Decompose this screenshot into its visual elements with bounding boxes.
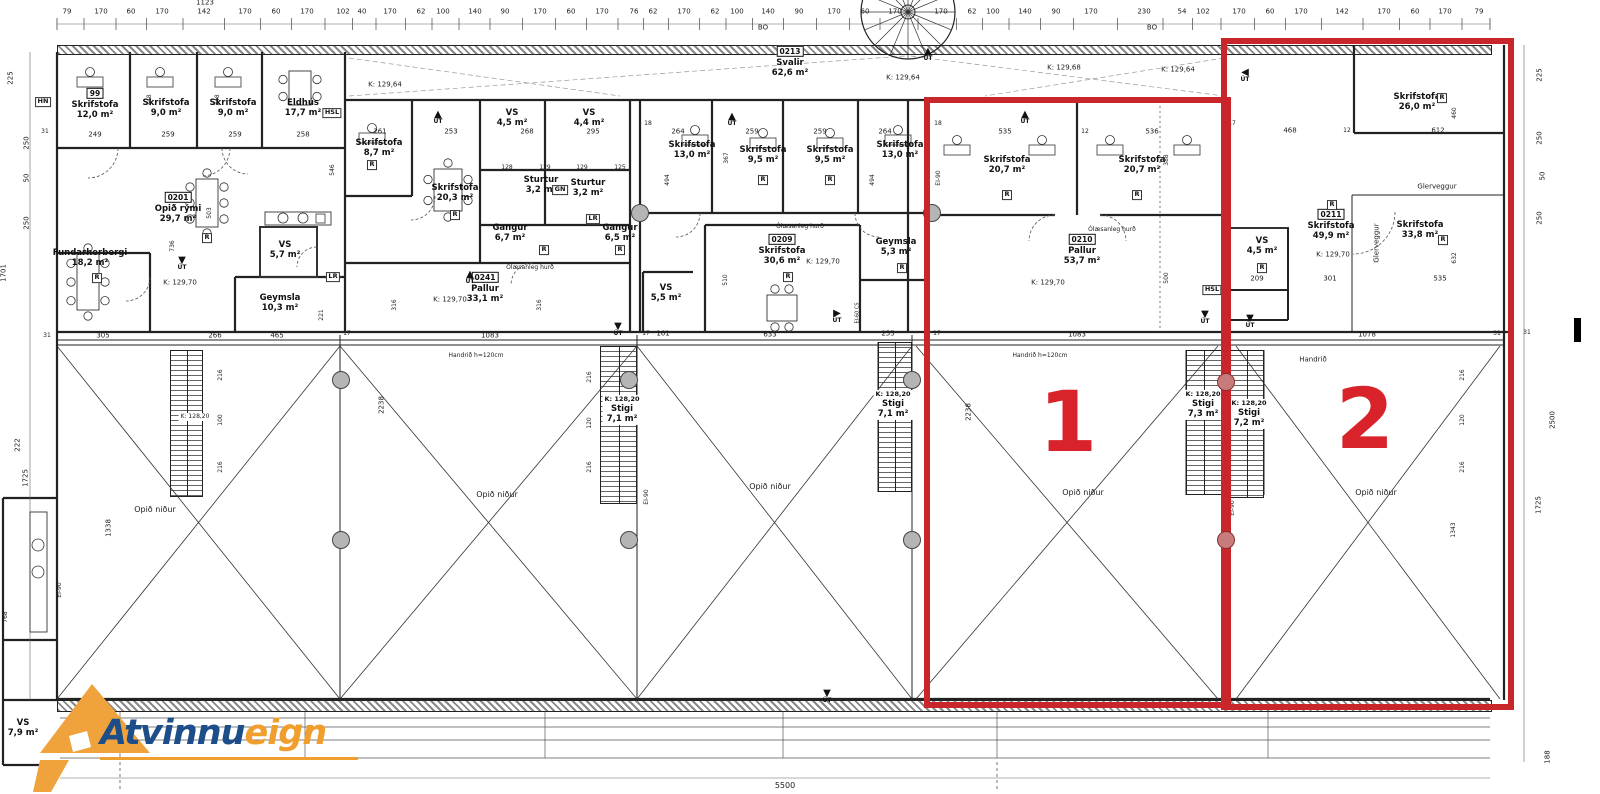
dim-label: 170 xyxy=(238,9,251,16)
text-label: Ólæsanleg hurð xyxy=(506,265,554,271)
dim-label: 60 xyxy=(1266,9,1275,16)
dim-label: 18 xyxy=(644,121,652,127)
room-label: Skrifstofa9,5 m² xyxy=(807,145,854,165)
dim-label: 31 xyxy=(1523,330,1531,336)
room-area: 5,3 m² xyxy=(876,247,917,257)
logo-word-orange: eign xyxy=(244,713,326,753)
unit-2-number: 2 xyxy=(1336,377,1394,461)
dim-label: 170 xyxy=(1294,9,1307,16)
dim-label: 50 xyxy=(1540,172,1547,181)
room-label: 99Skrifstofa12,0 m² xyxy=(72,88,119,120)
dim-label: 40 xyxy=(358,9,367,16)
room-area: 4,4 m² xyxy=(574,118,605,128)
dim-label: 1701 xyxy=(1,264,8,282)
dim-label: 79 xyxy=(63,9,72,16)
room-id: 0213 xyxy=(777,46,804,57)
room-name: Skrifstofa xyxy=(432,183,479,193)
room-area: 13,0 m² xyxy=(669,150,716,160)
exit-arrow-icon: ▲ÚT xyxy=(466,271,475,285)
dim-label: 170 xyxy=(1438,9,1451,16)
dim-label: 102 xyxy=(336,9,349,16)
dim-label: 170 xyxy=(1084,9,1097,16)
text-label: BO xyxy=(1147,25,1157,32)
dim-label: 1725 xyxy=(1536,496,1543,514)
dim-label: 305 xyxy=(96,333,109,340)
dim-label: 768 xyxy=(3,611,9,622)
exit-arrow-icon: ▲ÚT xyxy=(434,111,443,125)
room-area: 17,7 m² xyxy=(285,108,322,118)
wall-tag: R xyxy=(615,245,625,255)
dim-label: 258 xyxy=(296,132,309,139)
dim-label: 120 xyxy=(587,417,593,428)
dim-label: 250 xyxy=(1537,131,1544,144)
dim-label: 250 xyxy=(1537,211,1544,224)
dim-label: 1338 xyxy=(106,519,113,537)
text-label: K: 129,68 xyxy=(1047,65,1081,72)
dim-label: 170 xyxy=(300,9,313,16)
text-label: K: 129,64 xyxy=(886,75,920,82)
exit-arrow-icon: ▲ÚT xyxy=(728,113,737,127)
room-label: Skrifstofa13,0 m² xyxy=(877,140,924,160)
structural-column xyxy=(1217,531,1235,549)
dim-label: 367 xyxy=(724,152,730,163)
dim-label: 255 xyxy=(881,331,894,338)
room-name: Skrifstofa xyxy=(143,98,190,108)
room-id: 99 xyxy=(87,88,103,99)
text-label: K: 129,70 xyxy=(806,259,840,266)
dim-label: 90 xyxy=(795,9,804,16)
dim-label: 90 xyxy=(1052,9,1061,16)
structural-column xyxy=(332,371,350,389)
dim-label: 170 xyxy=(934,9,947,16)
logo-wordmark: Atvinnueign xyxy=(100,716,326,751)
wall-tag: GN xyxy=(552,185,568,195)
logo-word-blue: Atvinnu xyxy=(100,713,244,753)
room-area: 7,9 m² xyxy=(8,728,39,738)
wall-tag: R xyxy=(783,272,793,282)
dim-label: 31 xyxy=(43,333,51,339)
dim-label: 170 xyxy=(827,9,840,16)
room-name: VS xyxy=(574,108,605,118)
room-label: Gangur6,7 m² xyxy=(492,223,527,243)
room-label: Gangur6,5 m² xyxy=(602,223,637,243)
dim-label: 216 xyxy=(218,461,224,472)
dim-label: 50 xyxy=(24,174,31,183)
room-id: 0241 xyxy=(472,272,499,283)
room-name: Svalir xyxy=(772,58,809,68)
wall-tag: R xyxy=(758,175,768,185)
room-label: Fundarherbergi18,2 m² xyxy=(53,248,128,268)
dim-label: 216 xyxy=(587,461,593,472)
dim-label: 546 xyxy=(330,164,336,175)
dim-label: 62 xyxy=(649,9,658,16)
dim-label: 259 xyxy=(813,129,826,136)
room-label: K: 128,20Stigi7,1 m² xyxy=(603,395,642,425)
dim-label: 79 xyxy=(1475,9,1484,16)
dim-label: 250 xyxy=(24,136,31,149)
dim-label: 494 xyxy=(665,174,671,185)
room-name: Eldhús xyxy=(285,98,322,108)
text-label: EI-60 CS xyxy=(856,302,861,323)
dim-label: 316 xyxy=(392,299,398,310)
dim-label: 225 xyxy=(1537,68,1544,81)
room-area: 6,7 m² xyxy=(492,233,527,243)
room-label: Sturtur3,2 m² xyxy=(571,178,606,198)
logo-triangle-icon xyxy=(33,680,163,794)
dim-label: 1725 xyxy=(23,469,30,487)
dim-label: 250 xyxy=(24,216,31,229)
staircase xyxy=(170,350,203,497)
room-name: Skrifstofa xyxy=(877,140,924,150)
room-label: K: 128,20Stigi7,1 m² xyxy=(874,390,913,420)
dim-label: 17 xyxy=(343,331,351,337)
dim-label: 249 xyxy=(88,132,101,139)
dim-label: 170 xyxy=(383,9,396,16)
room-label: Skrifstofa8,7 m² xyxy=(356,138,403,158)
room-name: VS xyxy=(8,718,39,728)
room-name: Geymsla xyxy=(260,293,301,303)
wall-tag: R xyxy=(825,175,835,185)
room-area: 13,0 m² xyxy=(877,150,924,160)
dim-label: 1083 xyxy=(481,333,499,340)
room-name: Skrifstofa xyxy=(807,145,854,155)
dim-label: 129 xyxy=(539,165,550,171)
dim-label: 736 xyxy=(170,240,176,251)
dim-label: 2500 xyxy=(1550,411,1557,429)
room-label: Geymsla5,3 m² xyxy=(876,237,917,257)
room-name: VS xyxy=(651,283,682,293)
room-name: VS xyxy=(270,240,301,250)
room-name: Skrifstofa xyxy=(759,246,806,256)
structural-column xyxy=(631,204,649,222)
exit-arrow-icon: ▼ÚT xyxy=(823,690,832,704)
wall-tag: R xyxy=(92,273,102,283)
room-area: 62,6 m² xyxy=(772,68,809,78)
room-name: Skrifstofa xyxy=(72,100,119,110)
dim-label: 230 xyxy=(1137,9,1150,16)
text-label: Handrið h=120cm xyxy=(449,353,504,359)
dim-label: 259 xyxy=(161,132,174,139)
text-label: EI-90 xyxy=(644,489,650,504)
room-label: VS4,4 m² xyxy=(574,108,605,128)
room-area: 29,7 m² xyxy=(155,214,202,224)
dim-label: 60 xyxy=(567,9,576,16)
room-label: Skrifstofa9,0 m² xyxy=(210,98,257,118)
structural-column xyxy=(620,531,638,549)
dim-label: 216 xyxy=(587,371,593,382)
dim-label: 221 xyxy=(319,309,325,320)
text-label: Opið niður xyxy=(749,483,791,491)
dim-label: 142 xyxy=(1335,9,1348,16)
dim-label: 142 xyxy=(197,9,210,16)
dim-label: 465 xyxy=(270,333,283,340)
text-label: Ólæsanleg hurð xyxy=(776,224,824,230)
room-area: 5,7 m² xyxy=(270,250,301,260)
dim-label: 494 xyxy=(870,174,876,185)
room-area: 33,1 m² xyxy=(467,294,504,304)
dim-label: 62 xyxy=(968,9,977,16)
right-index-mark xyxy=(1574,318,1581,342)
dim-label: 170 xyxy=(155,9,168,16)
room-area: 8,7 m² xyxy=(356,148,403,158)
wall-tag: R xyxy=(897,263,907,273)
dim-label: 90 xyxy=(501,9,510,16)
room-id: 0209 xyxy=(769,234,796,245)
room-label: VS5,7 m² xyxy=(270,240,301,260)
dim-label: 268 xyxy=(520,129,533,136)
exit-arrow-icon: ▶ÚT xyxy=(833,310,842,324)
dim-label: 188 xyxy=(1545,750,1552,763)
room-area: 9,5 m² xyxy=(807,155,854,165)
dim-label: 100 xyxy=(218,414,224,425)
dim-label: 259 xyxy=(228,132,241,139)
dim-label: 76 xyxy=(630,9,639,16)
room-name: Stigi xyxy=(876,399,911,409)
dim-label: 60 xyxy=(272,9,281,16)
wall-tag: R xyxy=(450,210,460,220)
dim-label: 633 xyxy=(763,332,776,339)
room-id: 0201 xyxy=(165,192,192,203)
room-area: 9,0 m² xyxy=(143,108,190,118)
dim-label: 316 xyxy=(537,299,543,310)
dim-label: 140 xyxy=(1018,9,1031,16)
room-area: 18,2 m² xyxy=(53,258,128,268)
room-name: Fundarherbergi xyxy=(53,248,128,258)
text-label: K: 129,70 xyxy=(163,280,197,287)
text-label: K: 129,64 xyxy=(368,82,402,89)
dim-label: 222 xyxy=(15,438,22,451)
room-level: K: 128,20 xyxy=(605,396,640,404)
room-area: 6,5 m² xyxy=(602,233,637,243)
dim-label: 54 xyxy=(1178,9,1187,16)
dim-label: 62 xyxy=(711,9,720,16)
room-label: 0213Svalir62,6 m² xyxy=(772,46,809,78)
dim-label: 2238 xyxy=(379,396,386,414)
dim-label: 266 xyxy=(208,333,221,340)
unit-1-number: 1 xyxy=(1039,380,1097,464)
dim-label: 264 xyxy=(878,129,891,136)
wall-tag: LR xyxy=(586,214,600,224)
text-label: EI-90 xyxy=(57,582,63,597)
text-label: K: 129,64 xyxy=(1161,67,1195,74)
floor-plan: 7917060170142170601701024017062100140901… xyxy=(0,0,1600,794)
structural-column xyxy=(903,531,921,549)
wall-tag: R xyxy=(367,160,377,170)
room-area: 7,1 m² xyxy=(605,414,640,424)
room-label: Skrifstofa13,0 m² xyxy=(669,140,716,160)
dim-label: 264 xyxy=(671,129,684,136)
dim-label: 125 xyxy=(614,165,625,171)
room-name: Sturtur xyxy=(571,178,606,188)
room-area: 30,6 m² xyxy=(759,256,806,266)
dim-label: 170 xyxy=(595,9,608,16)
dim-label: 60 xyxy=(1411,9,1420,16)
dim-label: 170 xyxy=(1377,9,1390,16)
room-area: 20,3 m² xyxy=(432,193,479,203)
dim-label: 100 xyxy=(986,9,999,16)
dim-label: 100 xyxy=(436,9,449,16)
exit-arrow-icon: ▼ÚT xyxy=(614,323,623,337)
room-area: 12,0 m² xyxy=(72,110,119,120)
dim-label: 17 xyxy=(642,331,650,337)
room-name: Geymsla xyxy=(876,237,917,247)
room-name: Gangur xyxy=(492,223,527,233)
dim-label: 170 xyxy=(888,9,901,16)
structural-column xyxy=(332,531,350,549)
room-label: VS7,9 m² xyxy=(8,718,39,738)
dim-label: 261 xyxy=(373,129,386,136)
text-label: K: 129,70 xyxy=(433,297,467,304)
dim-label: 140 xyxy=(468,9,481,16)
wall-tag: HSL xyxy=(322,108,341,118)
dim-label: 1123 xyxy=(196,0,214,7)
dim-label: 100 xyxy=(730,9,743,16)
dim-label: 102 xyxy=(1196,9,1209,16)
room-area: 9,5 m² xyxy=(740,155,787,165)
room-label: Geymsla10,3 m² xyxy=(260,293,301,313)
room-label: Skrifstofa20,3 m² xyxy=(432,183,479,203)
room-name: Opið rými xyxy=(155,204,202,214)
room-name: Skrifstofa xyxy=(356,138,403,148)
dim-label: 170 xyxy=(533,9,546,16)
text-label: Opið niður xyxy=(476,491,518,499)
exit-arrow-icon: ▼ÚT xyxy=(178,257,187,271)
room-label: Eldhús17,7 m² xyxy=(285,98,322,118)
room-area: 10,3 m² xyxy=(260,303,301,313)
dim-label: 503 xyxy=(207,207,213,218)
wall-tag: HN xyxy=(35,97,51,107)
text-label: K: 128,20 xyxy=(179,413,212,421)
dim-label: 170 xyxy=(94,9,107,16)
room-area: 4,5 m² xyxy=(497,118,528,128)
dim-label: 510 xyxy=(723,274,729,285)
room-name: VS xyxy=(497,108,528,118)
room-label: VS5,5 m² xyxy=(651,283,682,303)
room-name: Pallur xyxy=(467,284,504,294)
room-name: Stigi xyxy=(605,404,640,414)
dim-label: 225 xyxy=(8,71,15,84)
room-name: Skrifstofa xyxy=(740,145,787,155)
dim-label: 60 xyxy=(127,9,136,16)
wall-tag: R xyxy=(202,233,212,243)
dim-label: 129 xyxy=(576,165,587,171)
room-level: K: 128,20 xyxy=(876,391,911,399)
text-label: Opið niður xyxy=(134,506,176,514)
logo-underline xyxy=(100,757,358,760)
exit-arrow-icon: ▲ÚT xyxy=(924,48,933,62)
room-label: Skrifstofa9,5 m² xyxy=(740,145,787,165)
dim-label: 216 xyxy=(218,369,224,380)
dim-label: 170 xyxy=(1232,9,1245,16)
dim-label: 31 xyxy=(41,129,49,135)
room-name: Skrifstofa xyxy=(210,98,257,108)
room-label: Skrifstofa9,0 m² xyxy=(143,98,190,118)
dim-label: 5500 xyxy=(775,782,795,790)
room-label: VS4,5 m² xyxy=(497,108,528,128)
room-label: 0201Opið rými29,7 m² xyxy=(155,192,202,224)
wall-tag: R xyxy=(539,245,549,255)
structural-column xyxy=(903,371,921,389)
dim-label: 295 xyxy=(586,129,599,136)
dim-label: 161 xyxy=(656,331,669,338)
dim-label: 60 xyxy=(861,9,870,16)
room-name: Gangur xyxy=(602,223,637,233)
room-area: 5,5 m² xyxy=(651,293,682,303)
text-label: BO xyxy=(758,25,768,32)
dim-label: 259 xyxy=(745,129,758,136)
room-name: Sturtur xyxy=(524,175,559,185)
dim-label: 128 xyxy=(501,165,512,171)
structural-column xyxy=(620,371,638,389)
room-name: Skrifstofa xyxy=(669,140,716,150)
room-area: 7,1 m² xyxy=(876,409,911,419)
wall-tag: LR xyxy=(326,272,340,282)
structural-column xyxy=(1217,373,1235,391)
dim-label: 62 xyxy=(417,9,426,16)
dim-label: 170 xyxy=(677,9,690,16)
room-label: 0209Skrifstofa30,6 m² xyxy=(759,234,806,266)
dim-label: 253 xyxy=(444,129,457,136)
room-area: 9,0 m² xyxy=(210,108,257,118)
dim-label: 140 xyxy=(761,9,774,16)
room-area: 3,2 m² xyxy=(571,188,606,198)
